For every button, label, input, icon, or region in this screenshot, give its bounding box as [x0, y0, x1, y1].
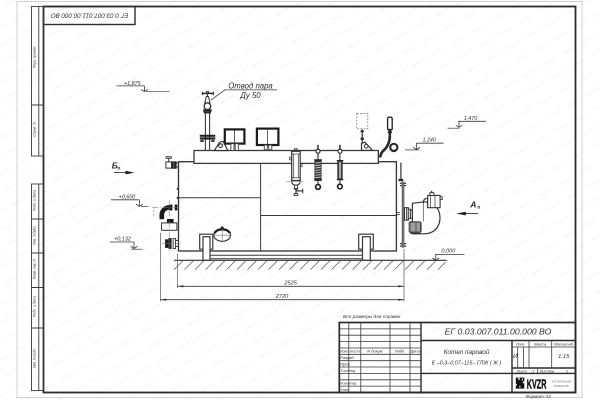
svg-text:Пров.: Пров.: [340, 362, 351, 367]
svg-text:Подп. и дата: Подп. и дата: [33, 190, 37, 211]
svg-text:Взам. инв. N: Взам. инв. N: [33, 259, 37, 279]
svg-text:1:15: 1:15: [558, 354, 570, 360]
svg-text:Листов: Листов: [539, 368, 555, 373]
svg-text:2525: 2525: [283, 281, 297, 287]
svg-text:ЕГ 0.03.007.011.00.000 ВО: ЕГ 0.03.007.011.00.000 ВО: [51, 11, 128, 18]
svg-text:Дата: Дата: [409, 349, 421, 354]
svg-text:+0,132: +0,132: [114, 236, 131, 242]
svg-text:Утв.: Утв.: [340, 387, 349, 392]
svg-text:0,000: 0,000: [441, 248, 456, 254]
svg-text:Изм: Изм: [340, 349, 348, 354]
svg-text:Справ. N: Справ. N: [33, 122, 37, 137]
svg-text:2720: 2720: [275, 294, 289, 300]
svg-text:1: 1: [532, 368, 534, 373]
svg-text:Ду 50: Ду 50: [239, 91, 261, 100]
svg-text:Б: Б: [112, 161, 118, 171]
svg-text:KVZR: KVZR: [527, 378, 547, 392]
svg-text:Инв. N подл.: Инв. N подл.: [33, 348, 37, 368]
svg-text:1,240: 1,240: [422, 138, 436, 144]
svg-text:Все размеры для справок: Все размеры для справок: [343, 314, 401, 320]
svg-text:Разраб.: Разраб.: [340, 355, 354, 360]
svg-text:ЗАВОД РФ: ЗАВОД РФ: [554, 384, 570, 388]
svg-text:Масштаб: Масштаб: [554, 342, 573, 347]
svg-text:Котел паровой: Котел паровой: [444, 348, 490, 356]
svg-text:А: А: [469, 200, 476, 210]
svg-text:Лист: Лист: [349, 349, 361, 354]
svg-text:Е –0,3–0,07–115– ГЛЖ ( Ж ): Е –0,3–0,07–115– ГЛЖ ( Ж ): [432, 361, 502, 367]
svg-text:Масса: Масса: [534, 342, 547, 347]
svg-text:ЕГ 0.03.007.011.00.000 ВО: ЕГ 0.03.007.011.00.000 ВО: [445, 327, 552, 337]
svg-text:Лит.: Лит.: [515, 342, 525, 347]
svg-text:Формат А3: Формат А3: [525, 394, 551, 399]
svg-text:Н.контр.: Н.контр.: [340, 381, 357, 386]
svg-text:Т.контр.: Т.контр.: [340, 368, 356, 373]
svg-text:N докум.: N докум.: [367, 349, 383, 354]
svg-text:Лист: Лист: [516, 368, 528, 373]
svg-text:Перв. примен.: Перв. примен.: [33, 46, 37, 69]
svg-text:И: И: [513, 353, 518, 360]
svg-text:Отвод пара: Отвод пара: [228, 81, 273, 90]
svg-text:Инв. N дубл.: Инв. N дубл.: [33, 225, 37, 245]
svg-text:Подп. и дата: Подп. и дата: [33, 296, 37, 317]
svg-text:Подп.: Подп.: [395, 349, 406, 354]
